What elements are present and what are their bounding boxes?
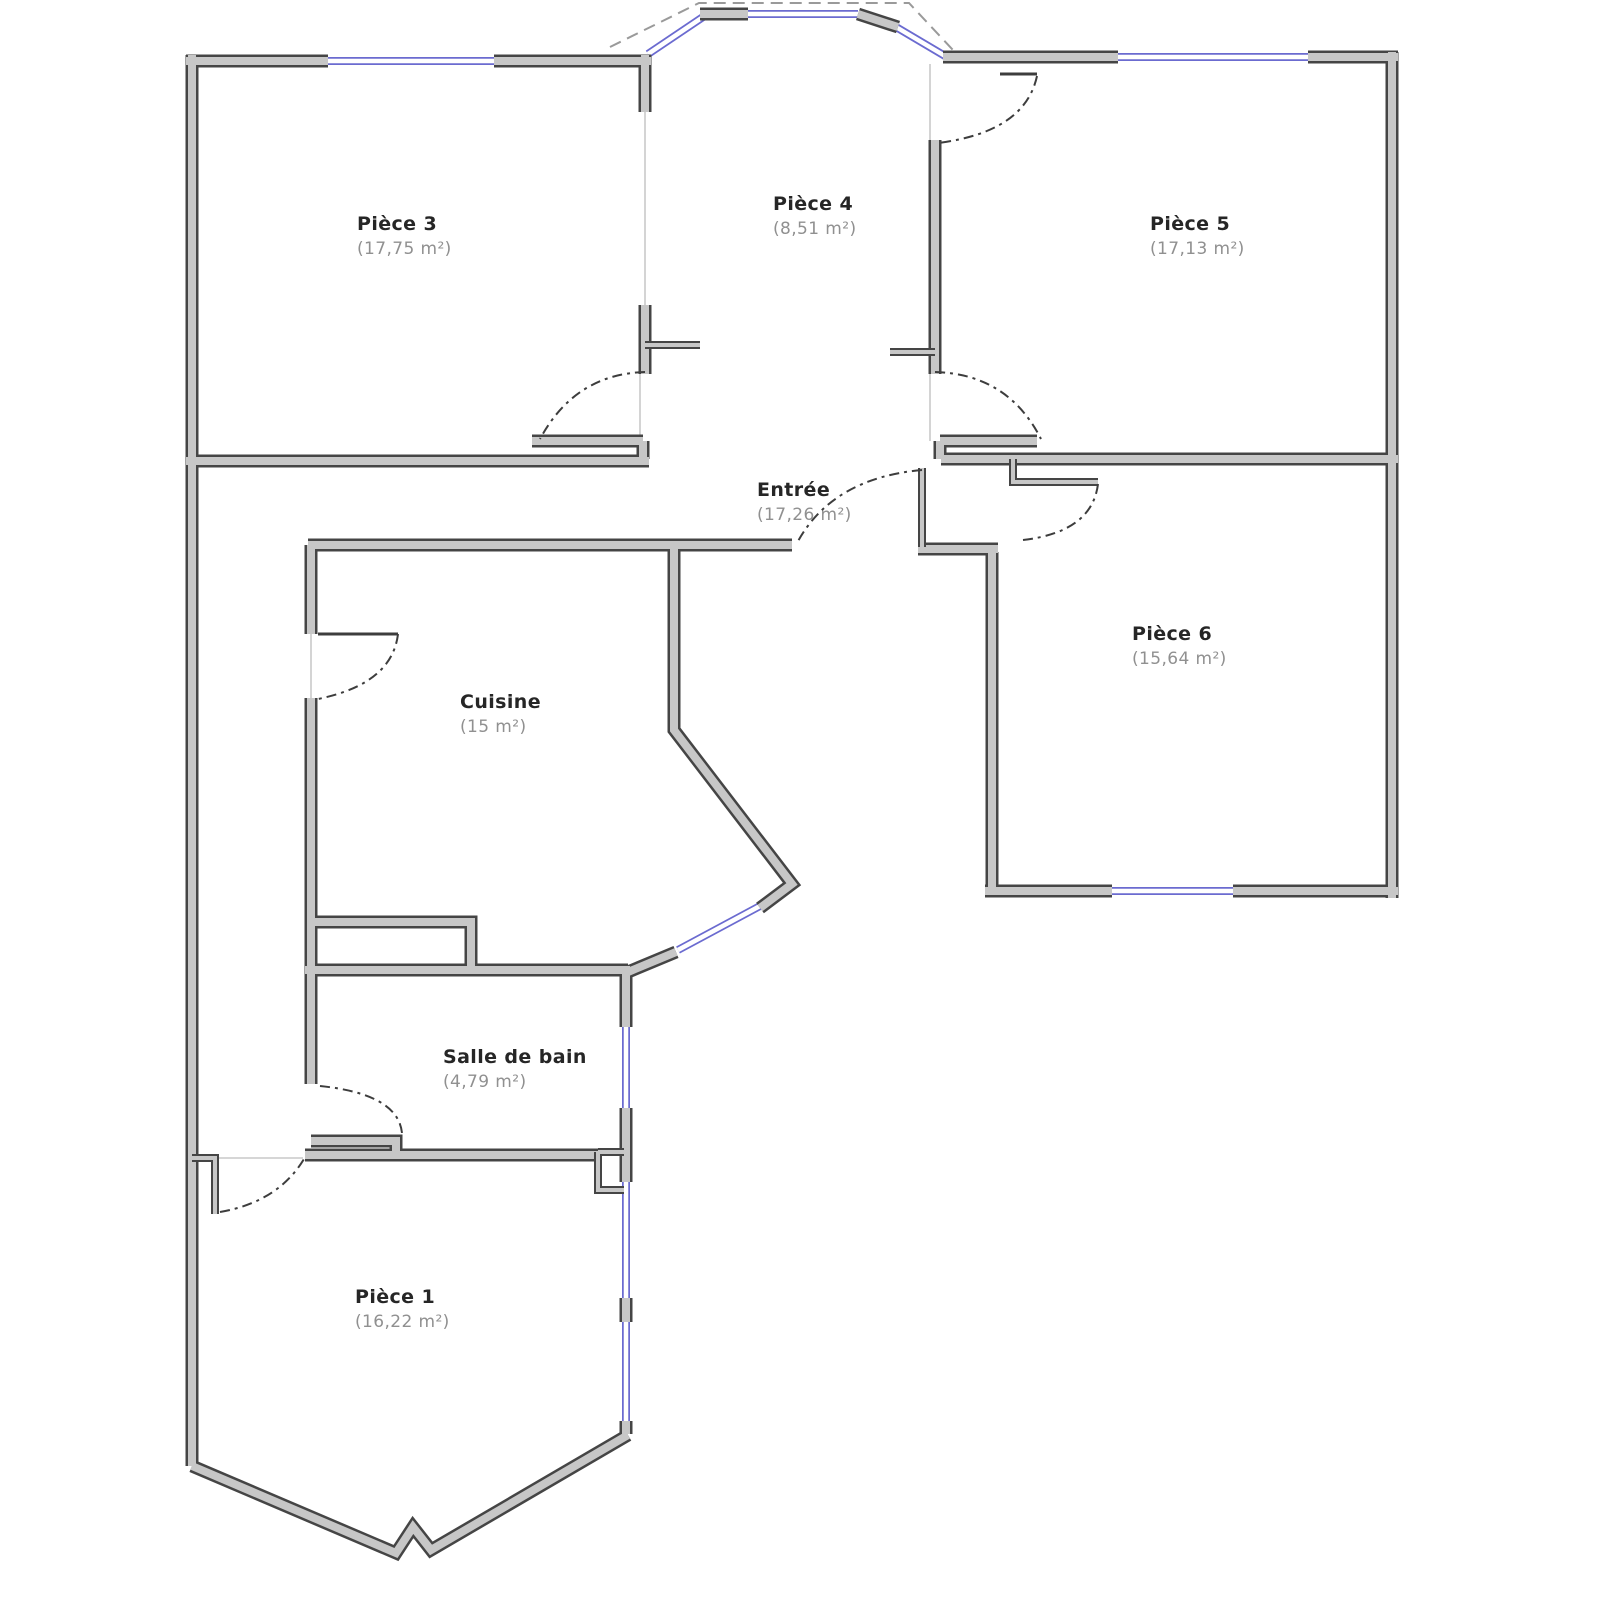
stub-walls-outline <box>192 345 1098 1214</box>
room-area: (16,22 m²) <box>355 1310 450 1335</box>
room-label-piece-4: Pièce 4 (8,51 m²) <box>773 192 857 242</box>
room-label-piece-1: Pièce 1 (16,22 m²) <box>355 1285 450 1335</box>
room-label-salle-de-bain: Salle de bain (4,79 m²) <box>443 1045 587 1095</box>
room-area: (8,51 m²) <box>773 217 857 242</box>
room-area: (15,64 m²) <box>1132 647 1227 672</box>
doors <box>220 74 1098 1212</box>
door-arc-cuisine <box>318 634 398 699</box>
room-area: (17,75 m²) <box>357 237 452 262</box>
door-arc-piece-1 <box>220 1159 304 1212</box>
room-name: Pièce 1 <box>355 1285 450 1310</box>
room-name: Pièce 3 <box>357 212 452 237</box>
room-label-piece-3: Pièce 3 (17,75 m²) <box>357 212 452 262</box>
floor-plan: Pièce 3 (17,75 m²) Pièce 4 (8,51 m²) Piè… <box>0 0 1600 1600</box>
room-area: (17,26 m²) <box>757 503 852 528</box>
room-area: (4,79 m²) <box>443 1070 587 1095</box>
door-arc-piece-3 <box>540 372 645 439</box>
room-name: Pièce 4 <box>773 192 857 217</box>
room-name: Cuisine <box>460 690 541 715</box>
room-area: (17,13 m²) <box>1150 237 1245 262</box>
room-label-piece-5: Pièce 5 (17,13 m²) <box>1150 212 1245 262</box>
room-name: Salle de bain <box>443 1045 587 1070</box>
stub-walls-fill <box>192 345 1098 1214</box>
door-arc-salle-de-bain <box>320 1086 402 1133</box>
door-arc-piece-5-side <box>935 372 1041 439</box>
room-label-piece-6: Pièce 6 (15,64 m²) <box>1132 622 1227 672</box>
room-name: Entrée <box>757 478 852 503</box>
room-name: Pièce 6 <box>1132 622 1227 647</box>
door-arc-piece-6 <box>1023 484 1098 540</box>
room-area: (15 m²) <box>460 715 541 740</box>
room-label-entree: Entrée (17,26 m²) <box>757 478 852 528</box>
room-label-cuisine: Cuisine (15 m²) <box>460 690 541 740</box>
door-arc-piece-5-top <box>938 76 1037 143</box>
room-name: Pièce 5 <box>1150 212 1245 237</box>
